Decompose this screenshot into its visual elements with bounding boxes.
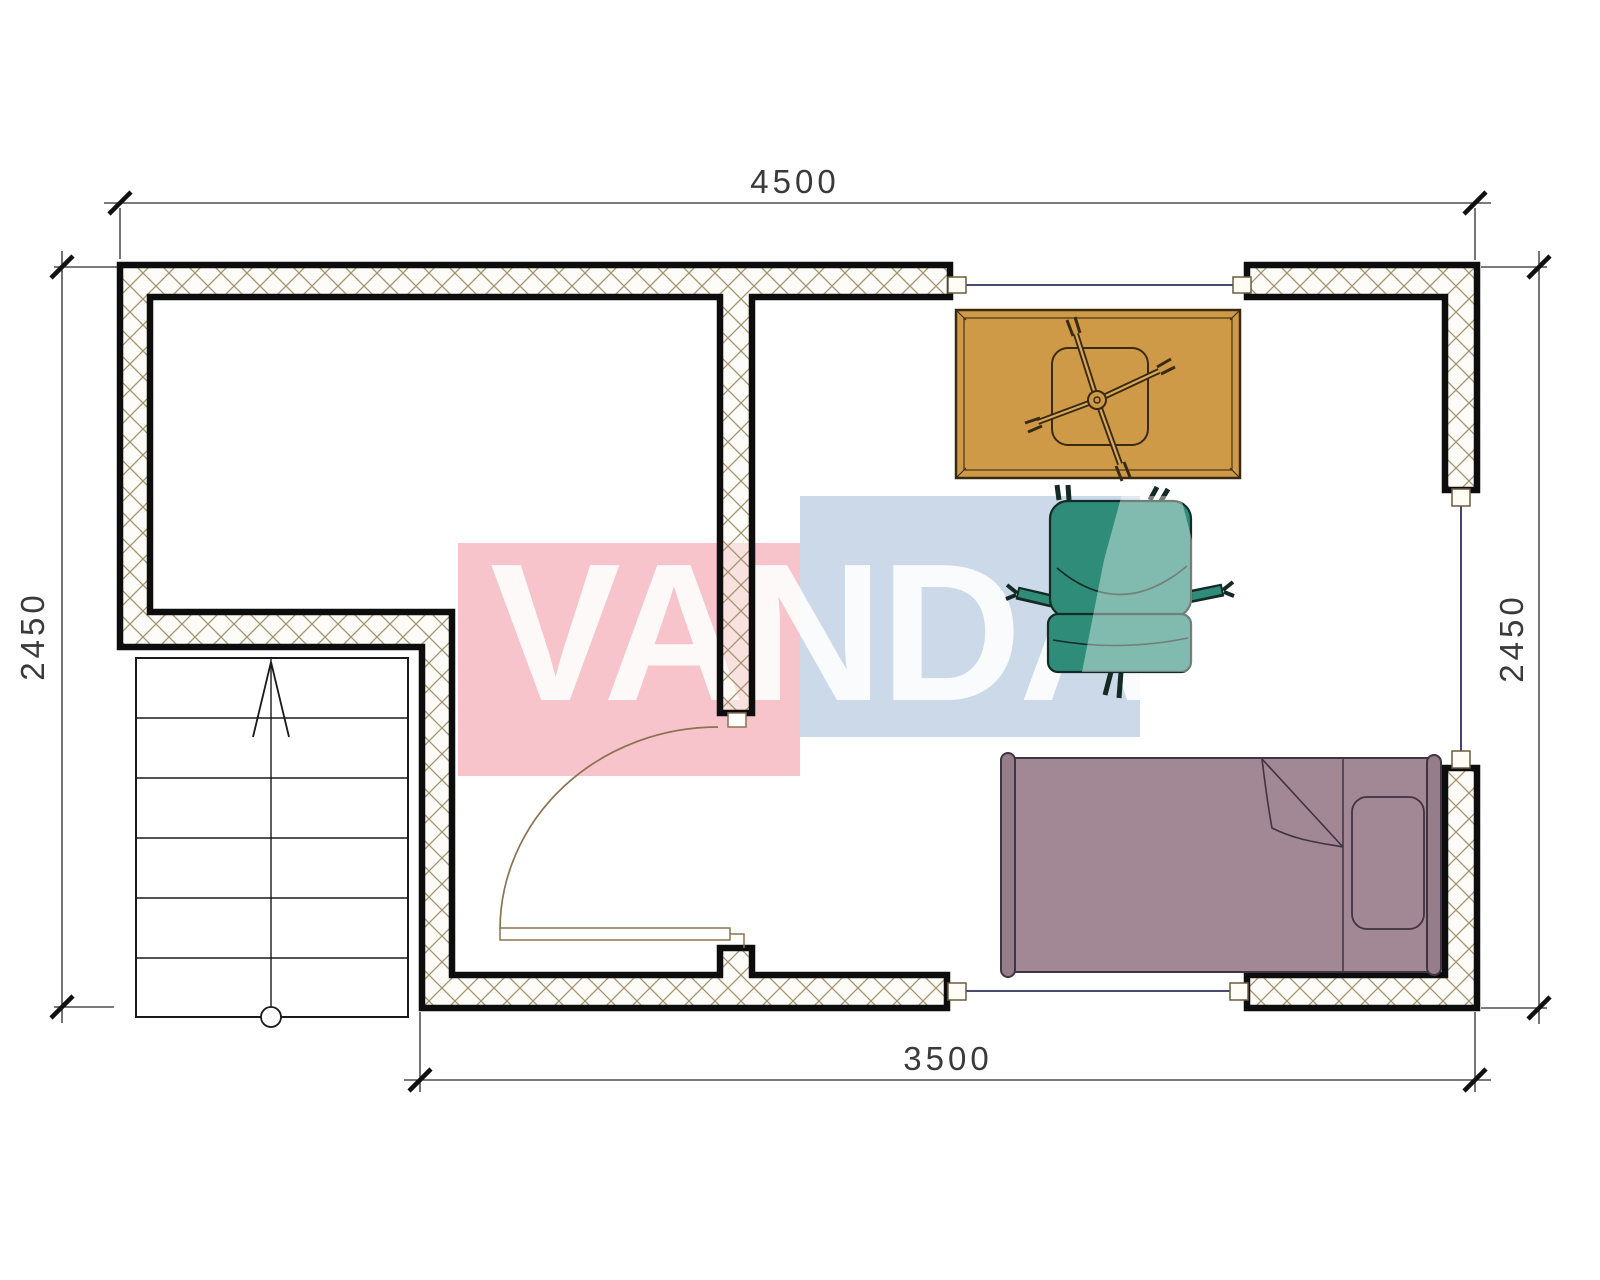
window-jamb-icon xyxy=(948,983,966,1000)
window-jamb-icon xyxy=(1230,983,1248,1000)
dimension-label-bottom: 3500 xyxy=(903,1040,992,1077)
window-jamb-icon xyxy=(1452,751,1470,768)
dimension-label-top: 4500 xyxy=(750,163,839,200)
door-leaf xyxy=(500,928,730,940)
window-jamb-icon xyxy=(948,277,966,293)
staircase xyxy=(136,658,408,1027)
door-jamb xyxy=(728,713,746,727)
window-jamb-icon xyxy=(1452,489,1470,506)
single-bed xyxy=(1001,753,1441,977)
bed-footboard xyxy=(1427,755,1441,975)
bed-pillow xyxy=(1352,797,1424,929)
floor-plan-drawing: VANDA xyxy=(0,0,1600,1280)
floor-plan-canvas: VANDA xyxy=(0,0,1600,1280)
dimension-label-right: 2450 xyxy=(1493,593,1530,682)
window-jamb-icon xyxy=(1233,277,1251,293)
dimension-label-left: 2450 xyxy=(14,591,51,680)
table-with-fan xyxy=(956,310,1240,481)
stairs-start-marker-icon xyxy=(261,1007,281,1027)
bed-headboard xyxy=(1001,753,1015,977)
